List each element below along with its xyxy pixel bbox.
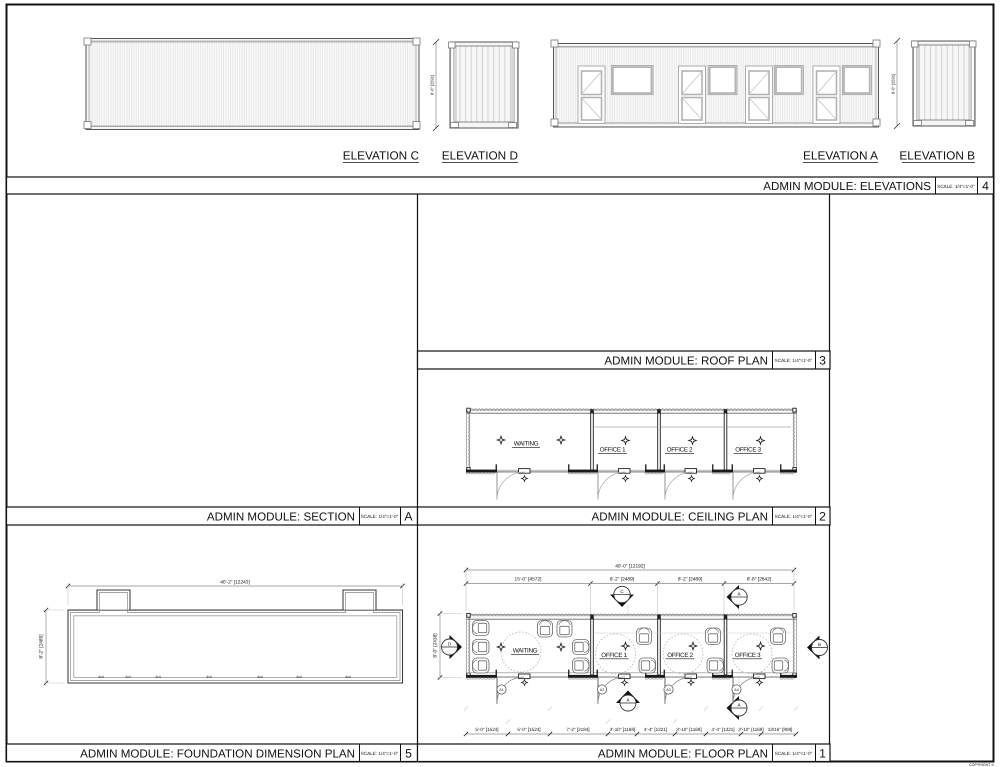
svg-text:SCALE: 1/4"=1'-0": SCALE: 1/4"=1'-0" [775,751,813,756]
svg-text:-: - [449,651,450,655]
svg-text:40'-0" [12192]: 40'-0" [12192] [615,564,645,570]
svg-text:-: - [621,599,622,603]
svg-text:4x4: 4x4 [345,675,351,679]
svg-text:OFFICE 3: OFFICE 3 [735,652,761,659]
svg-text:-: - [738,712,739,716]
svg-text:-: - [627,707,628,711]
svg-text:SCALE: 1/4"=1'-0": SCALE: 1/4"=1'-0" [775,514,813,519]
svg-text:-: - [819,652,820,656]
svg-text:8'-2" [2489]: 8'-2" [2489] [610,577,634,583]
svg-text:4x4: 4x4 [296,675,302,679]
svg-text:ADMIN MODULE: ELEVATIONS: ADMIN MODULE: ELEVATIONS [763,180,931,193]
svg-text:ELEVATION C: ELEVATION C [343,149,420,163]
svg-text:SCALE: 1/4"=1'-0": SCALE: 1/4"=1'-0" [361,514,399,519]
svg-text:SCALE: 1/4"=1'-0": SCALE: 1/4"=1'-0" [775,358,813,363]
svg-text:8'-2" [2489]: 8'-2" [2489] [39,634,45,658]
svg-text:ADMIN MODULE: ROOF PLAN: ADMIN MODULE: ROOF PLAN [604,355,768,368]
svg-text:8'-0" [2438]: 8'-0" [2438] [433,633,439,657]
svg-text:OFFICE 2: OFFICE 2 [667,652,693,659]
svg-text:1: 1 [819,747,826,761]
svg-text:A2: A2 [600,688,604,692]
svg-text:ADMIN MODULE: CEILING PLAN: ADMIN MODULE: CEILING PLAN [591,511,768,524]
svg-text:8'-8" [2642]: 8'-8" [2642] [747,577,771,583]
svg-text:OFFICE 1: OFFICE 1 [601,652,627,659]
svg-text:ADMIN MODULE: FLOOR PLAN: ADMIN MODULE: FLOOR PLAN [598,748,768,761]
svg-text:ADMIN MODULE: FOUNDATION DIMEN: ADMIN MODULE: FOUNDATION DIMENSION PLAN [80,748,355,761]
svg-text:3'-10" [1168]: 3'-10" [1168] [738,727,763,732]
svg-text:ADMIN MODULE: SECTION: ADMIN MODULE: SECTION [207,511,355,524]
svg-text:A4: A4 [734,688,738,692]
svg-text:8'-2" [2489]: 8'-2" [2489] [678,577,702,583]
svg-text:7'-2" [2184]: 7'-2" [2184] [566,727,589,732]
svg-text:ELEVATION B: ELEVATION B [899,149,975,163]
svg-text:4x4: 4x4 [98,675,104,679]
svg-text:8'-6" [2591]: 8'-6" [2591] [891,74,896,94]
svg-text:ELEVATION A: ELEVATION A [803,149,878,163]
svg-text:A3: A3 [666,688,670,692]
svg-text:SCALE: 1/4"=1'-0": SCALE: 1/4"=1'-0" [361,751,399,756]
svg-text:WAITING: WAITING [514,441,539,448]
svg-text:4x4: 4x4 [125,675,131,679]
svg-text:4x4: 4x4 [206,675,212,679]
svg-text:5'-0" [1524]: 5'-0" [1524] [517,727,540,732]
svg-text:3'-10" [1168]: 3'-10" [1168] [610,727,635,732]
svg-text:4x4: 4x4 [257,675,263,679]
svg-text:OFFICE 3: OFFICE 3 [735,447,761,454]
svg-text:COPYRIGHT ©: COPYRIGHT © [969,763,994,767]
svg-text:4x4: 4x4 [155,675,161,679]
svg-text:13/16" [808]: 13/16" [808] [768,727,793,732]
svg-text:WAITING: WAITING [513,648,538,655]
svg-text:5'-0" [1524]: 5'-0" [1524] [475,727,498,732]
svg-text:A1: A1 [499,688,503,692]
svg-text:ELEVATION D: ELEVATION D [442,149,518,163]
svg-text:40'-2" [12243]: 40'-2" [12243] [220,580,250,586]
svg-text:5: 5 [405,747,412,761]
svg-text:15'-0" [4572]: 15'-0" [4572] [515,577,542,583]
svg-text:SCALE: 1/4"=1'-0": SCALE: 1/4"=1'-0" [937,184,975,189]
svg-text:4'-4" [1321]: 4'-4" [1321] [711,727,734,732]
svg-text:4: 4 [982,179,989,193]
svg-text:2: 2 [819,510,826,524]
svg-text:3: 3 [819,354,826,368]
svg-text:OFFICE 2: OFFICE 2 [667,447,693,454]
svg-text:B: B [818,642,821,647]
svg-text:3'-10" [1168]: 3'-10" [1168] [676,727,701,732]
svg-text:A: A [404,510,413,524]
svg-text:-: - [738,601,739,605]
svg-text:8'-6" [2591]: 8'-6" [2591] [430,75,435,95]
svg-text:OFFICE 1: OFFICE 1 [600,447,626,454]
svg-text:4'-4" [1321]: 4'-4" [1321] [644,727,667,732]
